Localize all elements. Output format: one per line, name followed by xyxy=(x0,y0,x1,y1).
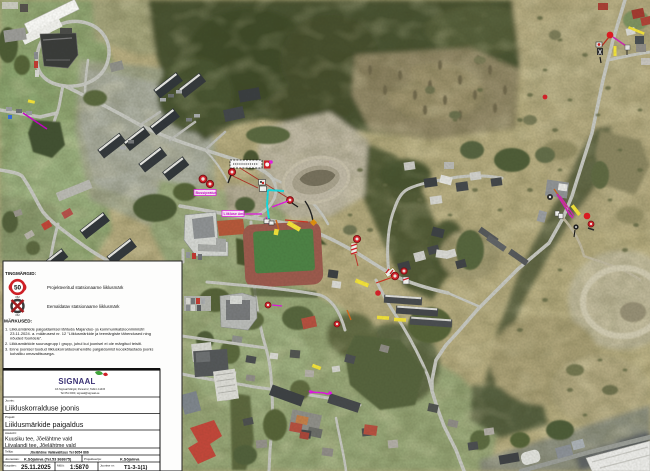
svg-text:Projekteerija:: Projekteerija: xyxy=(84,457,102,461)
svg-text:Eemaldatav statsionaarne liikl: Eemaldatav statsionaarne liiklusmärk xyxy=(47,304,120,309)
svg-text:T1-3-1(1): T1-3-1(1) xyxy=(124,465,147,471)
svg-text:362: 362 xyxy=(15,313,20,317)
svg-text:Projekteeritud statsionaarne l: Projekteeritud statsionaarne liiklusmärk xyxy=(47,285,124,290)
svg-text:Liikluskorralduse joonis: Liikluskorralduse joonis xyxy=(5,404,80,413)
svg-text:Joonis:: Joonis: xyxy=(5,399,15,403)
svg-text:Joonise nr:: Joonise nr: xyxy=(100,464,115,468)
svg-text:Kuusiku tee, Jõelähtme vald: Kuusiku tee, Jõelähtme vald xyxy=(5,437,72,443)
svg-text:362: 362 xyxy=(15,295,20,299)
svg-text:MÄRKUSED:: MÄRKUSED: xyxy=(4,318,33,324)
svg-text:Joonestas:: Joonestas: xyxy=(5,457,20,461)
svg-text:Tel 651 0000, signaal@signaal.: Tel 651 0000, signaal@signaal.ee xyxy=(61,391,101,395)
svg-text:Liiklusmärkide paigaldus: Liiklusmärkide paigaldus xyxy=(5,420,84,429)
svg-text:kohaliku omavalitsusega.: kohaliku omavalitsusega. xyxy=(10,351,55,356)
svg-text:K.Sõjainva: K.Sõjainva xyxy=(120,458,140,462)
svg-text:1:5870: 1:5870 xyxy=(70,465,89,471)
svg-text:Mõõt:: Mõõt: xyxy=(57,464,65,468)
svg-text:K.Sõjainva (Tel.53 368675): K.Sõjainva (Tel.53 368675) xyxy=(24,458,72,462)
svg-text:Tellija:: Tellija: xyxy=(5,450,14,454)
svg-text:Asukoht:: Asukoht: xyxy=(5,431,17,435)
svg-text:2. Liiklusmärkide suurusgrupp: 2. Liiklusmärkide suurusgrupp I grupp, j… xyxy=(5,341,142,346)
svg-text:25.11.2025: 25.11.2025 xyxy=(21,465,51,471)
svg-text:Projekt:: Projekt: xyxy=(5,415,15,419)
svg-text:Jõelähtme Vallavalitsus Tel 60: Jõelähtme Vallavalitsus Tel 6054 866 xyxy=(30,451,89,455)
svg-text:AS Signaal Märgid, Paneeli 2,: AS Signaal Märgid, Paneeli 2, Tallinn 11… xyxy=(55,387,106,391)
svg-text:nõuded fooridele".: nõuded fooridele". xyxy=(10,336,42,341)
svg-text:Kuupäev:: Kuupäev: xyxy=(4,464,17,468)
svg-text:SIGNAAL: SIGNAAL xyxy=(58,377,95,386)
svg-text:TINGMÄRGID:: TINGMÄRGID: xyxy=(5,270,37,276)
svg-text:50: 50 xyxy=(14,284,22,291)
